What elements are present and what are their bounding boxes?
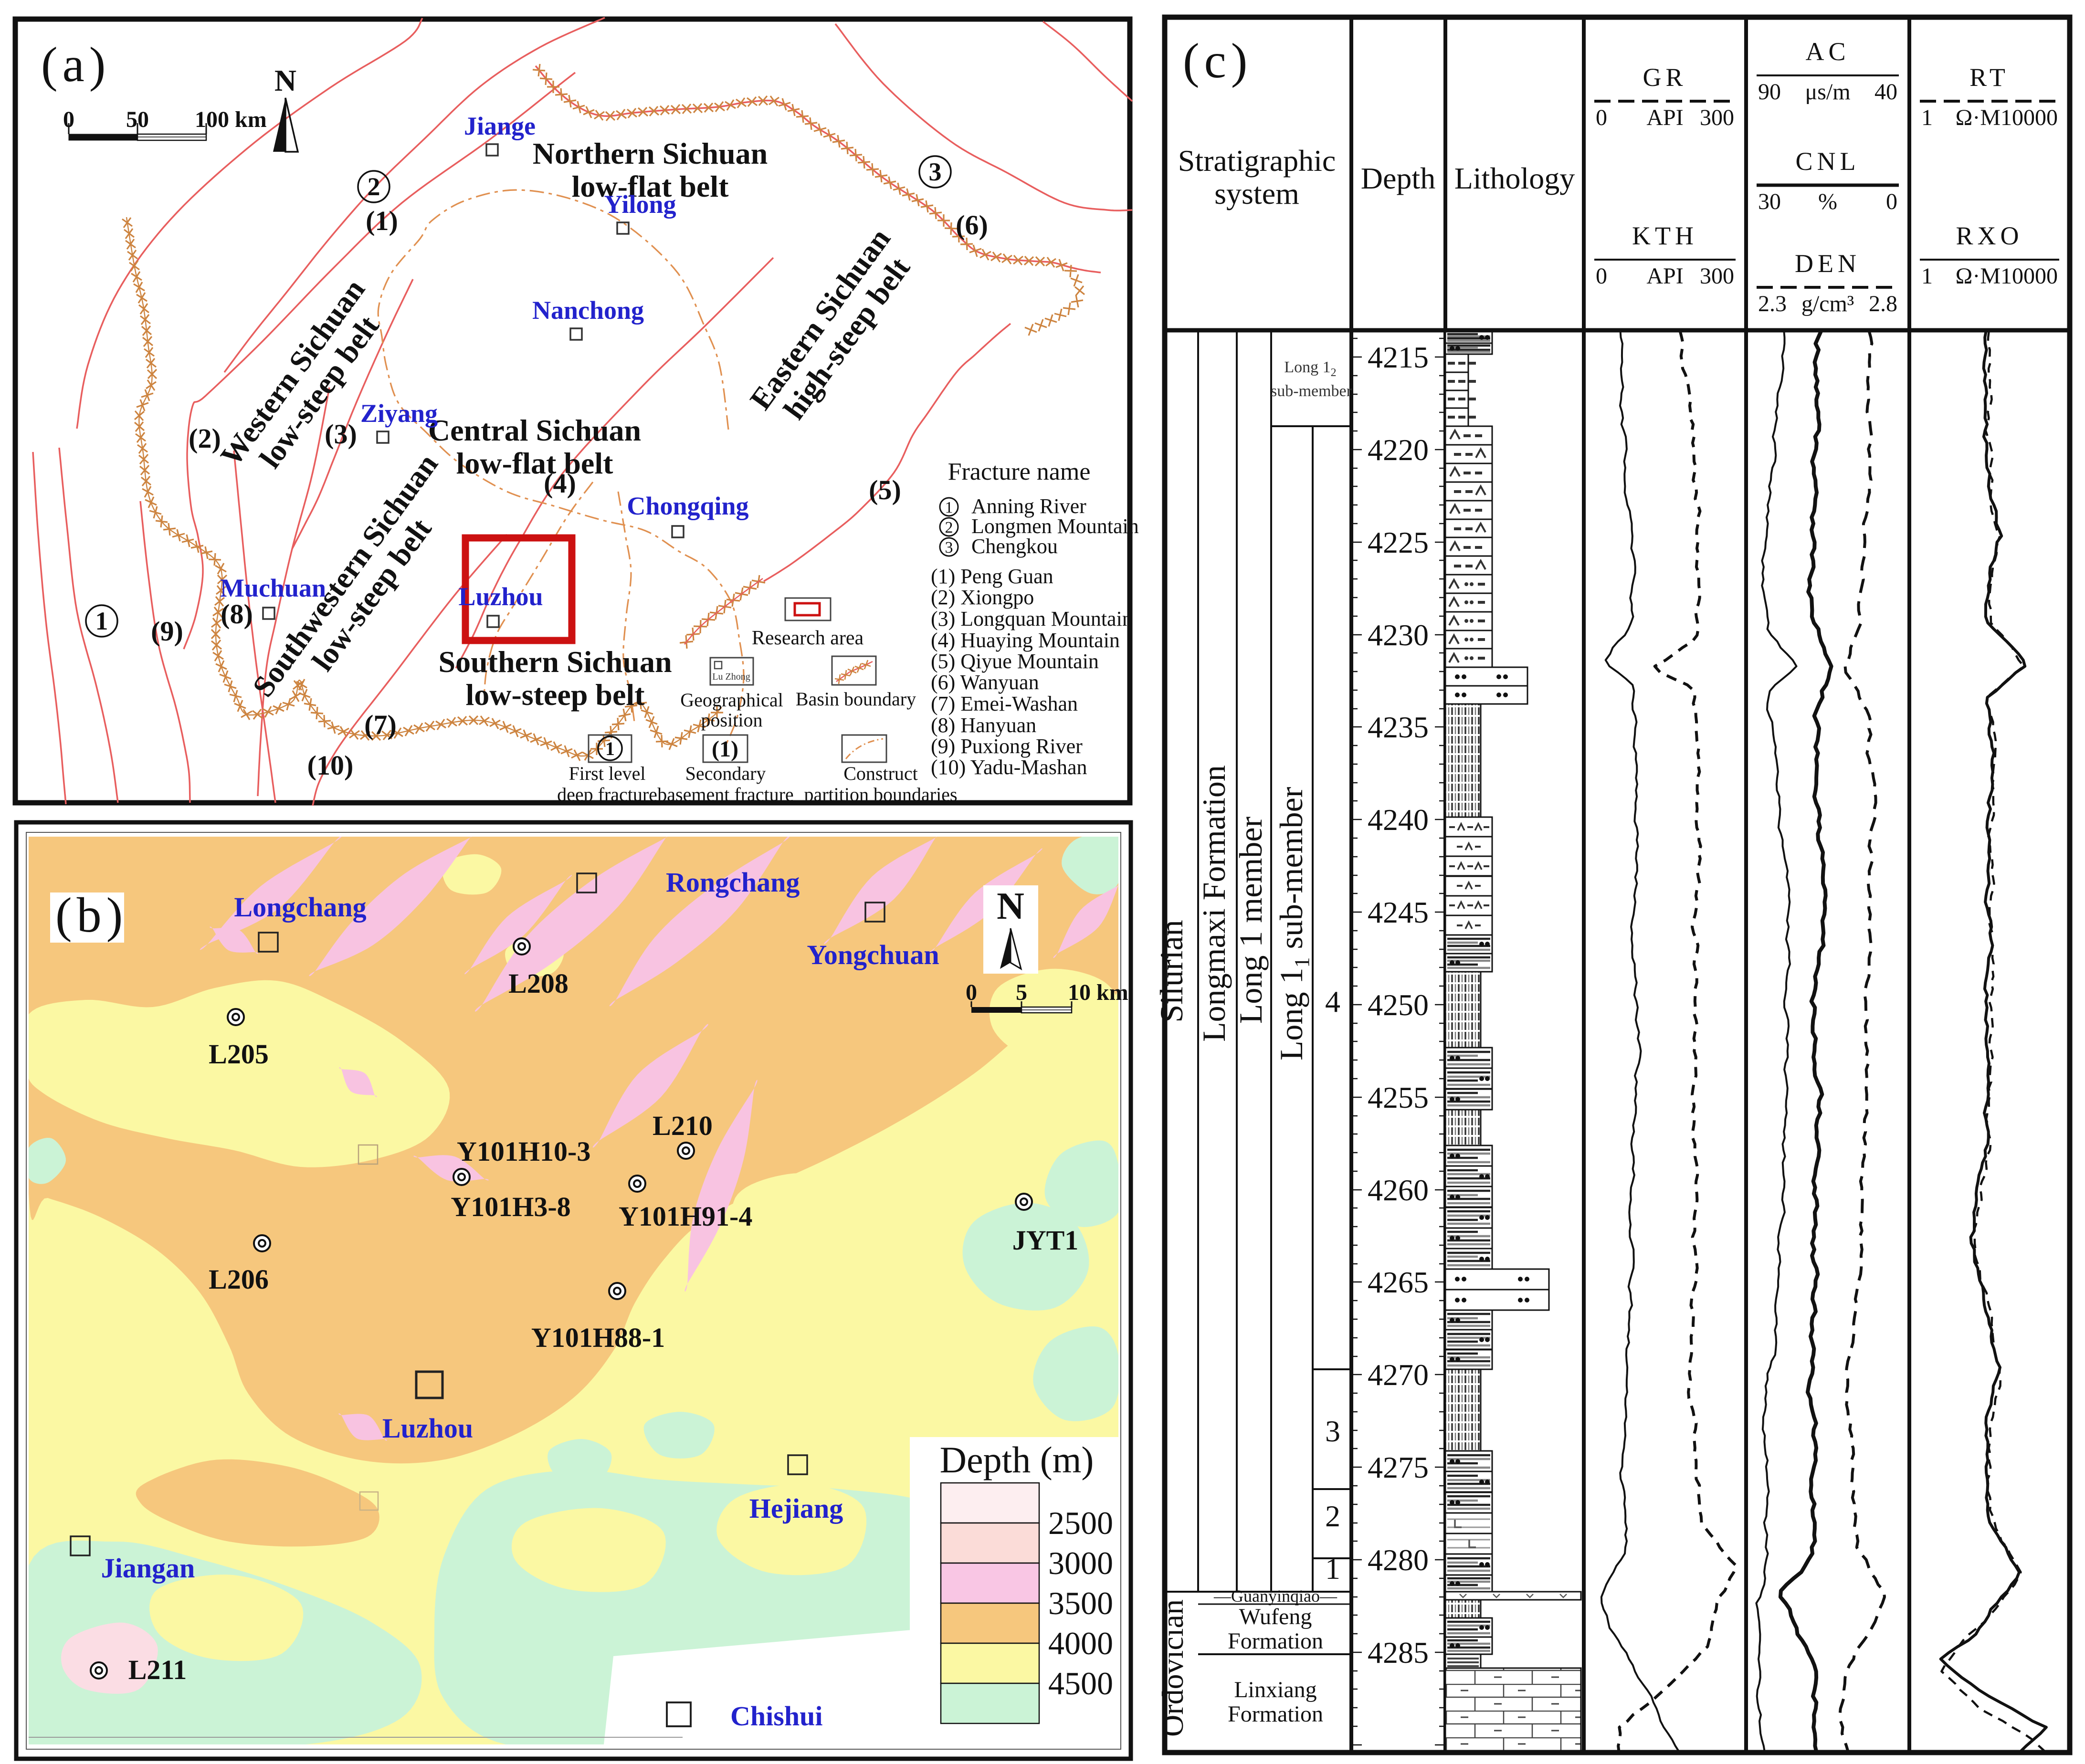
svg-text:Lithology: Lithology — [1454, 161, 1575, 195]
svg-text:1: 1 — [1921, 105, 1933, 130]
svg-text:sub-member: sub-member — [1271, 382, 1352, 400]
svg-text:4260: 4260 — [1368, 1173, 1429, 1207]
svg-text:Long 12: Long 12 — [1284, 358, 1336, 379]
svg-text:Formation: Formation — [1228, 1628, 1323, 1654]
svg-text:—Guanyinqiao—: —Guanyinqiao— — [1213, 1586, 1337, 1606]
svg-text:2.3: 2.3 — [1758, 291, 1787, 316]
svg-text:4265: 4265 — [1368, 1265, 1429, 1299]
svg-text:Wufeng: Wufeng — [1239, 1604, 1312, 1629]
svg-text:4280: 4280 — [1368, 1543, 1429, 1577]
svg-text:4230: 4230 — [1368, 618, 1429, 652]
svg-text:4285: 4285 — [1368, 1636, 1429, 1669]
svg-text:0: 0 — [1886, 189, 1897, 214]
svg-text:Ω·M10000: Ω·M10000 — [1956, 263, 2058, 289]
svg-text:RXO: RXO — [1956, 221, 2023, 250]
svg-text:30: 30 — [1758, 189, 1781, 214]
svg-text:40: 40 — [1874, 79, 1897, 105]
svg-text:2.8: 2.8 — [1869, 291, 1897, 316]
svg-text:0: 0 — [1596, 105, 1607, 130]
svg-text:Ω·M10000: Ω·M10000 — [1956, 105, 2058, 130]
svg-text:4225: 4225 — [1368, 525, 1429, 559]
svg-text:4275: 4275 — [1368, 1450, 1429, 1484]
svg-text:API: API — [1646, 105, 1683, 130]
svg-text:Stratigraphic: Stratigraphic — [1178, 144, 1336, 178]
svg-text:%: % — [1818, 189, 1837, 214]
svg-text:4235: 4235 — [1368, 710, 1429, 744]
svg-text:90: 90 — [1758, 79, 1781, 105]
svg-text:AC: AC — [1805, 37, 1850, 66]
svg-text:1: 1 — [1325, 1552, 1340, 1585]
svg-text:Formation: Formation — [1228, 1701, 1323, 1727]
svg-text:g/cm³: g/cm³ — [1801, 291, 1854, 316]
svg-text:GR: GR — [1643, 63, 1687, 92]
svg-text:2: 2 — [1325, 1499, 1340, 1533]
svg-text:4245: 4245 — [1368, 895, 1429, 929]
svg-text:API: API — [1646, 263, 1683, 289]
svg-text:system: system — [1214, 177, 1299, 210]
svg-text:RT: RT — [1969, 63, 2010, 92]
svg-text:300: 300 — [1700, 105, 1734, 130]
svg-text:Silurian: Silurian — [1153, 920, 1190, 1022]
svg-text:Depth: Depth — [1361, 161, 1435, 195]
svg-text:DEN: DEN — [1795, 249, 1861, 278]
svg-text:(c): (c) — [1183, 33, 1252, 88]
svg-text:0: 0 — [1596, 263, 1607, 289]
svg-text:Linxiang: Linxiang — [1234, 1677, 1316, 1702]
svg-text:KTH: KTH — [1632, 221, 1698, 250]
svg-text:3: 3 — [1325, 1414, 1340, 1448]
svg-text:Longmaxi Formation: Longmaxi Formation — [1196, 765, 1232, 1042]
svg-text:4240: 4240 — [1368, 803, 1429, 837]
svg-text:4255: 4255 — [1368, 1081, 1429, 1114]
svg-text:300: 300 — [1700, 263, 1734, 289]
svg-text:1: 1 — [1921, 263, 1933, 289]
svg-text:Ordovician: Ordovician — [1156, 1599, 1190, 1737]
svg-text:Long 1 member: Long 1 member — [1232, 816, 1269, 1024]
svg-text:CNL: CNL — [1796, 147, 1860, 176]
svg-text:4270: 4270 — [1368, 1358, 1429, 1392]
svg-text:4: 4 — [1325, 985, 1340, 1018]
svg-text:4220: 4220 — [1368, 433, 1429, 467]
svg-text:4250: 4250 — [1368, 988, 1429, 1022]
svg-text:Long 11 sub-member: Long 11 sub-member — [1273, 787, 1314, 1060]
svg-text:4215: 4215 — [1368, 340, 1429, 374]
svg-text:μs/m: μs/m — [1805, 79, 1850, 105]
